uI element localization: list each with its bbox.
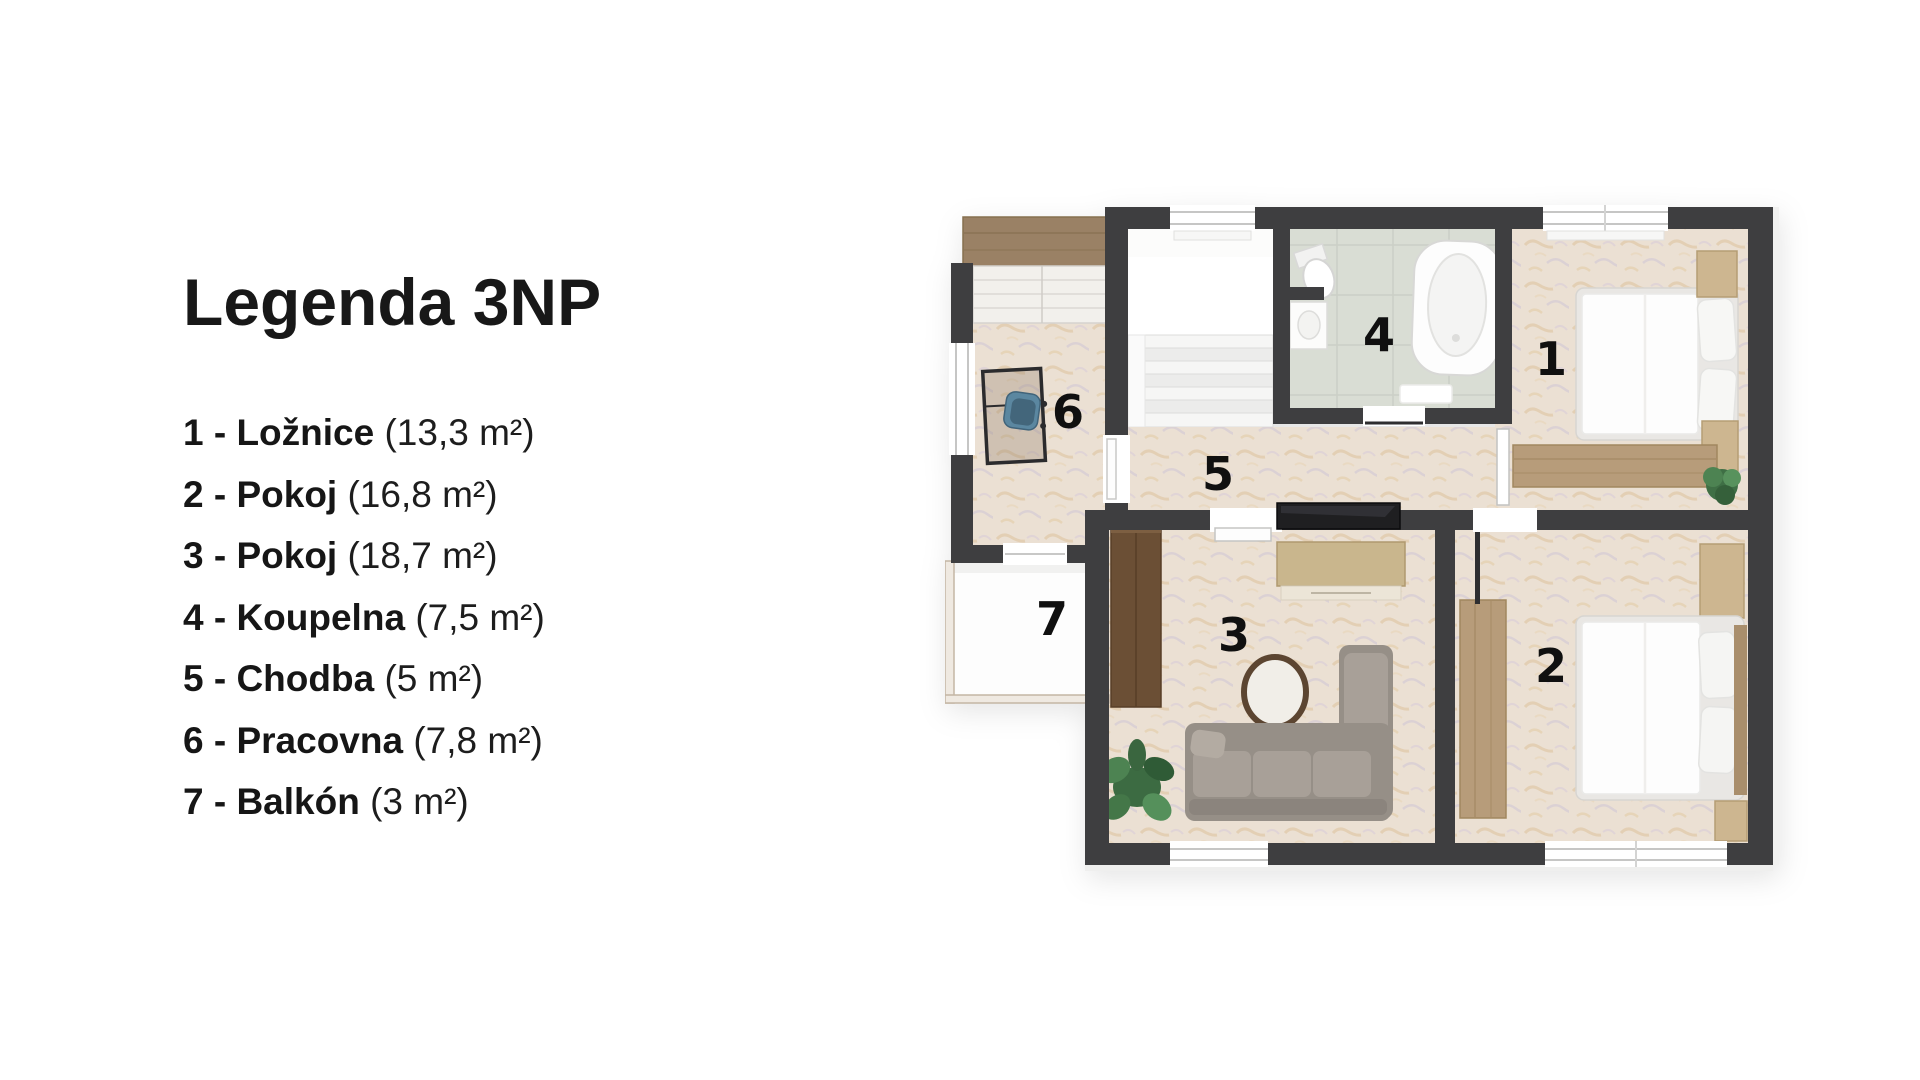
legend-item-area: (5 m²) <box>384 658 483 699</box>
page-title: Legenda 3NP <box>183 260 823 344</box>
legend-item-area: (16,8 m²) <box>347 474 497 515</box>
door <box>1497 429 1509 505</box>
door <box>1210 508 1282 541</box>
balcony-railing <box>945 695 1109 703</box>
legend-item-label: 5 - Chodba <box>183 658 374 699</box>
headboard <box>1734 625 1747 795</box>
legend-item-label: 1 - Ložnice <box>183 412 374 453</box>
door <box>1103 435 1130 503</box>
wardrobe-room2 <box>1700 544 1744 618</box>
floor-plan-svg: 1 2 3 4 5 6 7 <box>945 195 1805 885</box>
legend-items: 1 - Ložnice (13,3 m²) 2 - Pokoj (16,8 m²… <box>183 402 823 833</box>
bed-room1 <box>1576 288 1738 440</box>
legend-item-chodba: 5 - Chodba (5 m²) <box>183 648 823 710</box>
wardrobe-room3 <box>1111 525 1161 707</box>
room-label-5: 5 <box>1202 447 1234 501</box>
legend-item-area: (3 m²) <box>370 781 469 822</box>
nightstand <box>1697 251 1737 297</box>
dresser-room1 <box>1513 445 1717 487</box>
legend-item-pracovna: 6 - Pracovna (7,8 m²) <box>183 710 823 772</box>
window <box>1170 205 1255 240</box>
door <box>1363 406 1425 426</box>
room-label-1: 1 <box>1535 332 1567 386</box>
room-label-2: 2 <box>1535 639 1567 693</box>
legend-item-balkon: 7 - Balkón (3 m²) <box>183 771 823 833</box>
legend: Legenda 3NP 1 - Ložnice (13,3 m²) 2 - Po… <box>183 260 823 344</box>
console-room2 <box>1460 600 1506 818</box>
legend-item-label: 3 - Pokoj <box>183 535 337 576</box>
legend-item-label: 4 - Koupelna <box>183 597 405 638</box>
legend-item-area: (18,7 m²) <box>347 535 497 576</box>
window <box>949 343 975 455</box>
sideboard <box>1277 542 1405 600</box>
coffee-table <box>1244 657 1306 727</box>
room-label-4: 4 <box>1363 308 1395 362</box>
floor-plan: 1 2 3 4 5 6 7 <box>945 195 1805 885</box>
bed-room2 <box>1576 616 1747 800</box>
wall-face <box>1773 207 1779 865</box>
tv <box>1277 503 1400 529</box>
stairs <box>1128 217 1273 429</box>
room-label-6: 6 <box>1052 385 1084 439</box>
page: Legenda 3NP 1 - Ložnice (13,3 m²) 2 - Po… <box>0 0 1920 1080</box>
room-label-7: 7 <box>1036 592 1068 646</box>
legend-item-koupelna: 4 - Koupelna (7,5 m²) <box>183 587 823 649</box>
legend-item-area: (13,3 m²) <box>384 412 534 453</box>
legend-item-pokoj2: 2 - Pokoj (16,8 m²) <box>183 464 823 526</box>
legend-item-loznice: 1 - Ložnice (13,3 m²) <box>183 402 823 464</box>
legend-item-area: (7,5 m²) <box>415 597 545 638</box>
window <box>1543 205 1668 240</box>
window <box>1545 841 1727 867</box>
window <box>1170 841 1268 867</box>
bathtub <box>1411 240 1504 377</box>
legend-item-label: 6 - Pracovna <box>183 720 403 761</box>
legend-item-label: 2 - Pokoj <box>183 474 337 515</box>
door <box>1003 543 1067 565</box>
bath-vanity <box>1290 302 1327 349</box>
legend-item-label: 7 - Balkón <box>183 781 360 822</box>
nightstand <box>1715 801 1747 841</box>
room-5-chodba <box>1128 427 1495 510</box>
bath-mat <box>1400 385 1452 403</box>
room-7-balkon <box>945 561 1109 703</box>
balcony-railing <box>945 561 954 703</box>
legend-item-pokoj3: 3 - Pokoj (18,7 m²) <box>183 525 823 587</box>
room-label-3: 3 <box>1218 608 1250 662</box>
legend-item-area: (7,8 m²) <box>413 720 543 761</box>
wardrobe-top <box>963 217 1115 323</box>
